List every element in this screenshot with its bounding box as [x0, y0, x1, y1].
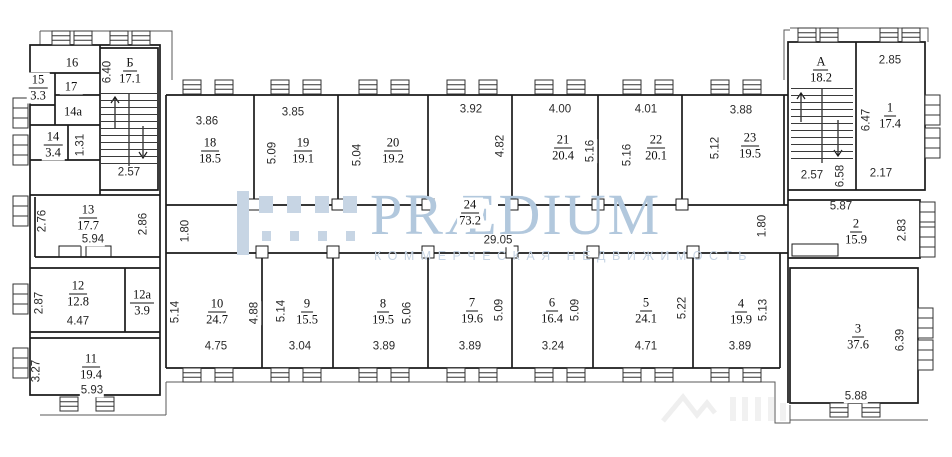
dim-room11-left: 3.27 [31, 359, 43, 383]
dim-room8-bottom: 3.89 [372, 341, 396, 353]
room-22-label: 2220.1 [643, 133, 669, 164]
room-23-label: 2319.5 [737, 131, 763, 162]
dim-room2-right: 2.83 [897, 218, 909, 242]
dim-room21-right: 5.16 [585, 139, 597, 163]
dim-room5-right: 5.22 [677, 296, 689, 320]
dim-room19-top: 3.85 [281, 107, 305, 119]
dim-room18-top: 3.86 [195, 116, 219, 128]
dim-room23-top: 3.88 [729, 105, 753, 117]
dim-room13-left: 2.76 [37, 209, 49, 233]
dim-room10-bottom: 4.75 [204, 341, 228, 353]
room-3-label: 337.6 [845, 322, 871, 353]
dim-passage-14: 1.31 [75, 133, 87, 157]
room-7-label: 719.6 [459, 296, 485, 327]
room-9-label: 915.5 [294, 297, 320, 328]
room-18-label: 1818.5 [197, 136, 223, 167]
dim-room10-left: 5.14 [170, 300, 182, 324]
dim-room2-top: 5.87 [829, 201, 853, 213]
room-14a-label: 14a [59, 105, 87, 120]
dim-room4-right: 5.13 [758, 298, 770, 322]
dim-room20-left: 5.04 [352, 143, 364, 167]
floor-plan-page: PRÆDIUM КОММЕРЧЕСКАЯ НЕДВИЖИМОСТЬ 16 17 … [0, 0, 952, 457]
room-20-label: 2019.2 [380, 136, 406, 167]
dim-room13-bottom: 5.94 [81, 234, 105, 246]
dim-room23-left: 5.12 [710, 136, 722, 160]
room-14-label: 143.4 [42, 130, 65, 161]
room-19-label: 1919.1 [290, 136, 316, 167]
dim-lobby-right: 4.82 [495, 134, 507, 158]
dim-stair-a-width: 2.57 [800, 170, 824, 182]
dim-stair-a-height: 6.58 [835, 164, 847, 188]
dim-room3-bottom: 5.88 [844, 391, 868, 403]
staircase-a-label: А18.2 [808, 55, 834, 86]
room-6-label: 616.4 [539, 296, 565, 327]
dim-room22-left: 5.16 [622, 143, 634, 167]
dim-room1-left: 6.47 [861, 108, 873, 132]
room-4-label: 419.9 [728, 297, 754, 328]
dim-stair-b-height: 6.40 [102, 60, 114, 84]
room-8-label: 819.5 [370, 297, 396, 328]
room-11-label: 1119.4 [78, 352, 104, 383]
room-2-label: 215.9 [843, 217, 869, 248]
dim-room7-right: 5.09 [494, 298, 506, 322]
staircase-b-treads [101, 93, 157, 166]
dim-room1-bottom: 2.17 [869, 168, 893, 180]
room-24-label: 2473.2 [457, 198, 483, 229]
room-5-label: 524.1 [633, 296, 659, 327]
room-12a-label: 12a3.9 [128, 288, 156, 319]
dim-room1-top: 2.85 [878, 55, 902, 67]
dim-room11-bottom: 5.93 [80, 385, 104, 397]
staircase-a-treads [791, 88, 853, 163]
room-17-label: 17 [60, 80, 83, 95]
room-15-label: 153.3 [27, 73, 50, 104]
room-10-label: 1024.7 [204, 297, 230, 328]
dim-room19-left: 5.09 [267, 141, 279, 165]
dim-stair-b-width: 2.57 [117, 167, 141, 179]
room-12-label: 1212.8 [65, 279, 91, 310]
dim-room10-right: 4.88 [249, 301, 261, 325]
room-1-label: 117.4 [877, 101, 903, 132]
dim-corridor-width-left: 1.80 [180, 219, 192, 243]
dim-room3-right: 6.39 [895, 328, 907, 352]
dim-room12-left: 2.87 [34, 291, 46, 315]
staircase-b-label: Б17.1 [117, 56, 143, 87]
dim-room21-top: 4.00 [548, 104, 572, 116]
dim-room12-bottom: 4.47 [66, 316, 90, 328]
room-21-label: 2120.4 [550, 133, 576, 164]
dim-room9-left: 5.14 [276, 299, 288, 323]
dim-corridor-length: 29.05 [483, 235, 514, 247]
dim-room8-right: 5.06 [402, 301, 414, 325]
dim-room22-top: 4.01 [634, 104, 658, 116]
faint-watermark [655, 383, 805, 433]
room-16-label: 16 [61, 56, 84, 71]
dim-room6-right: 5.09 [570, 298, 582, 322]
dim-room4-bottom: 3.89 [728, 341, 752, 353]
dim-room9-bottom: 3.04 [288, 341, 312, 353]
closet-boxes [59, 244, 838, 257]
dim-lobby-top: 3.92 [459, 104, 483, 116]
dim-room5-bottom: 4.71 [634, 341, 658, 353]
dim-corridor-width-right: 1.80 [757, 214, 769, 238]
dim-room7-bottom: 3.89 [458, 341, 482, 353]
room-13-label: 1317.7 [75, 203, 101, 234]
dim-room13-right: 2.86 [138, 212, 150, 236]
dim-room6-bottom: 3.24 [541, 341, 565, 353]
